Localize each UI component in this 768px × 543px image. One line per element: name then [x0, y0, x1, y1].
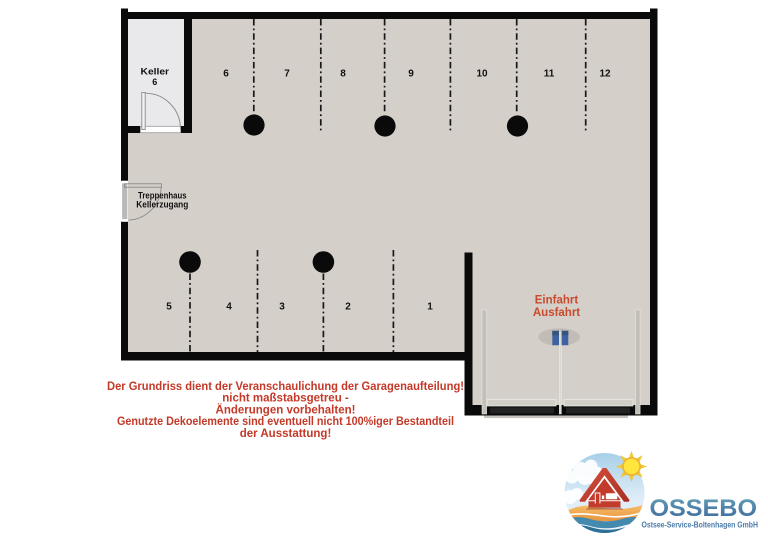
svg-text:nicht maßstabsgetreu -: nicht maßstabsgetreu -: [222, 393, 349, 405]
svg-text:2: 2: [345, 302, 351, 313]
svg-text:Ausfahrt: Ausfahrt: [533, 307, 580, 319]
svg-text:3: 3: [279, 302, 285, 313]
svg-text:1: 1: [427, 302, 433, 313]
svg-text:5: 5: [166, 302, 172, 313]
svg-text:OSSEBO: OSSEBO: [650, 495, 758, 522]
svg-text:6: 6: [223, 69, 229, 80]
svg-text:Ostsee-Service-Boltenhagen Gmb: Ostsee-Service-Boltenhagen GmbH: [642, 520, 759, 530]
svg-text:9: 9: [408, 69, 414, 80]
svg-text:Einfahrt: Einfahrt: [535, 295, 579, 307]
svg-text:der Ausstattung!: der Ausstattung!: [240, 428, 332, 440]
svg-text:Keller: Keller: [141, 66, 170, 76]
svg-text:Kellerzugang: Kellerzugang: [136, 200, 188, 210]
svg-text:6: 6: [152, 77, 157, 87]
svg-text:Änderungen vorbehalten!: Änderungen vorbehalten!: [216, 403, 356, 416]
svg-text:11: 11: [544, 69, 555, 80]
svg-text:8: 8: [340, 69, 346, 80]
svg-text:Der Grundriss dient der Verans: Der Grundriss dient der Veranschaulichun…: [107, 381, 464, 393]
svg-text:10: 10: [476, 69, 488, 80]
svg-text:Genutzte Dekoelemente sind eve: Genutzte Dekoelemente sind eventuell nic…: [117, 416, 454, 428]
svg-text:7: 7: [284, 69, 290, 80]
svg-text:12: 12: [599, 69, 611, 80]
svg-text:4: 4: [226, 302, 232, 313]
